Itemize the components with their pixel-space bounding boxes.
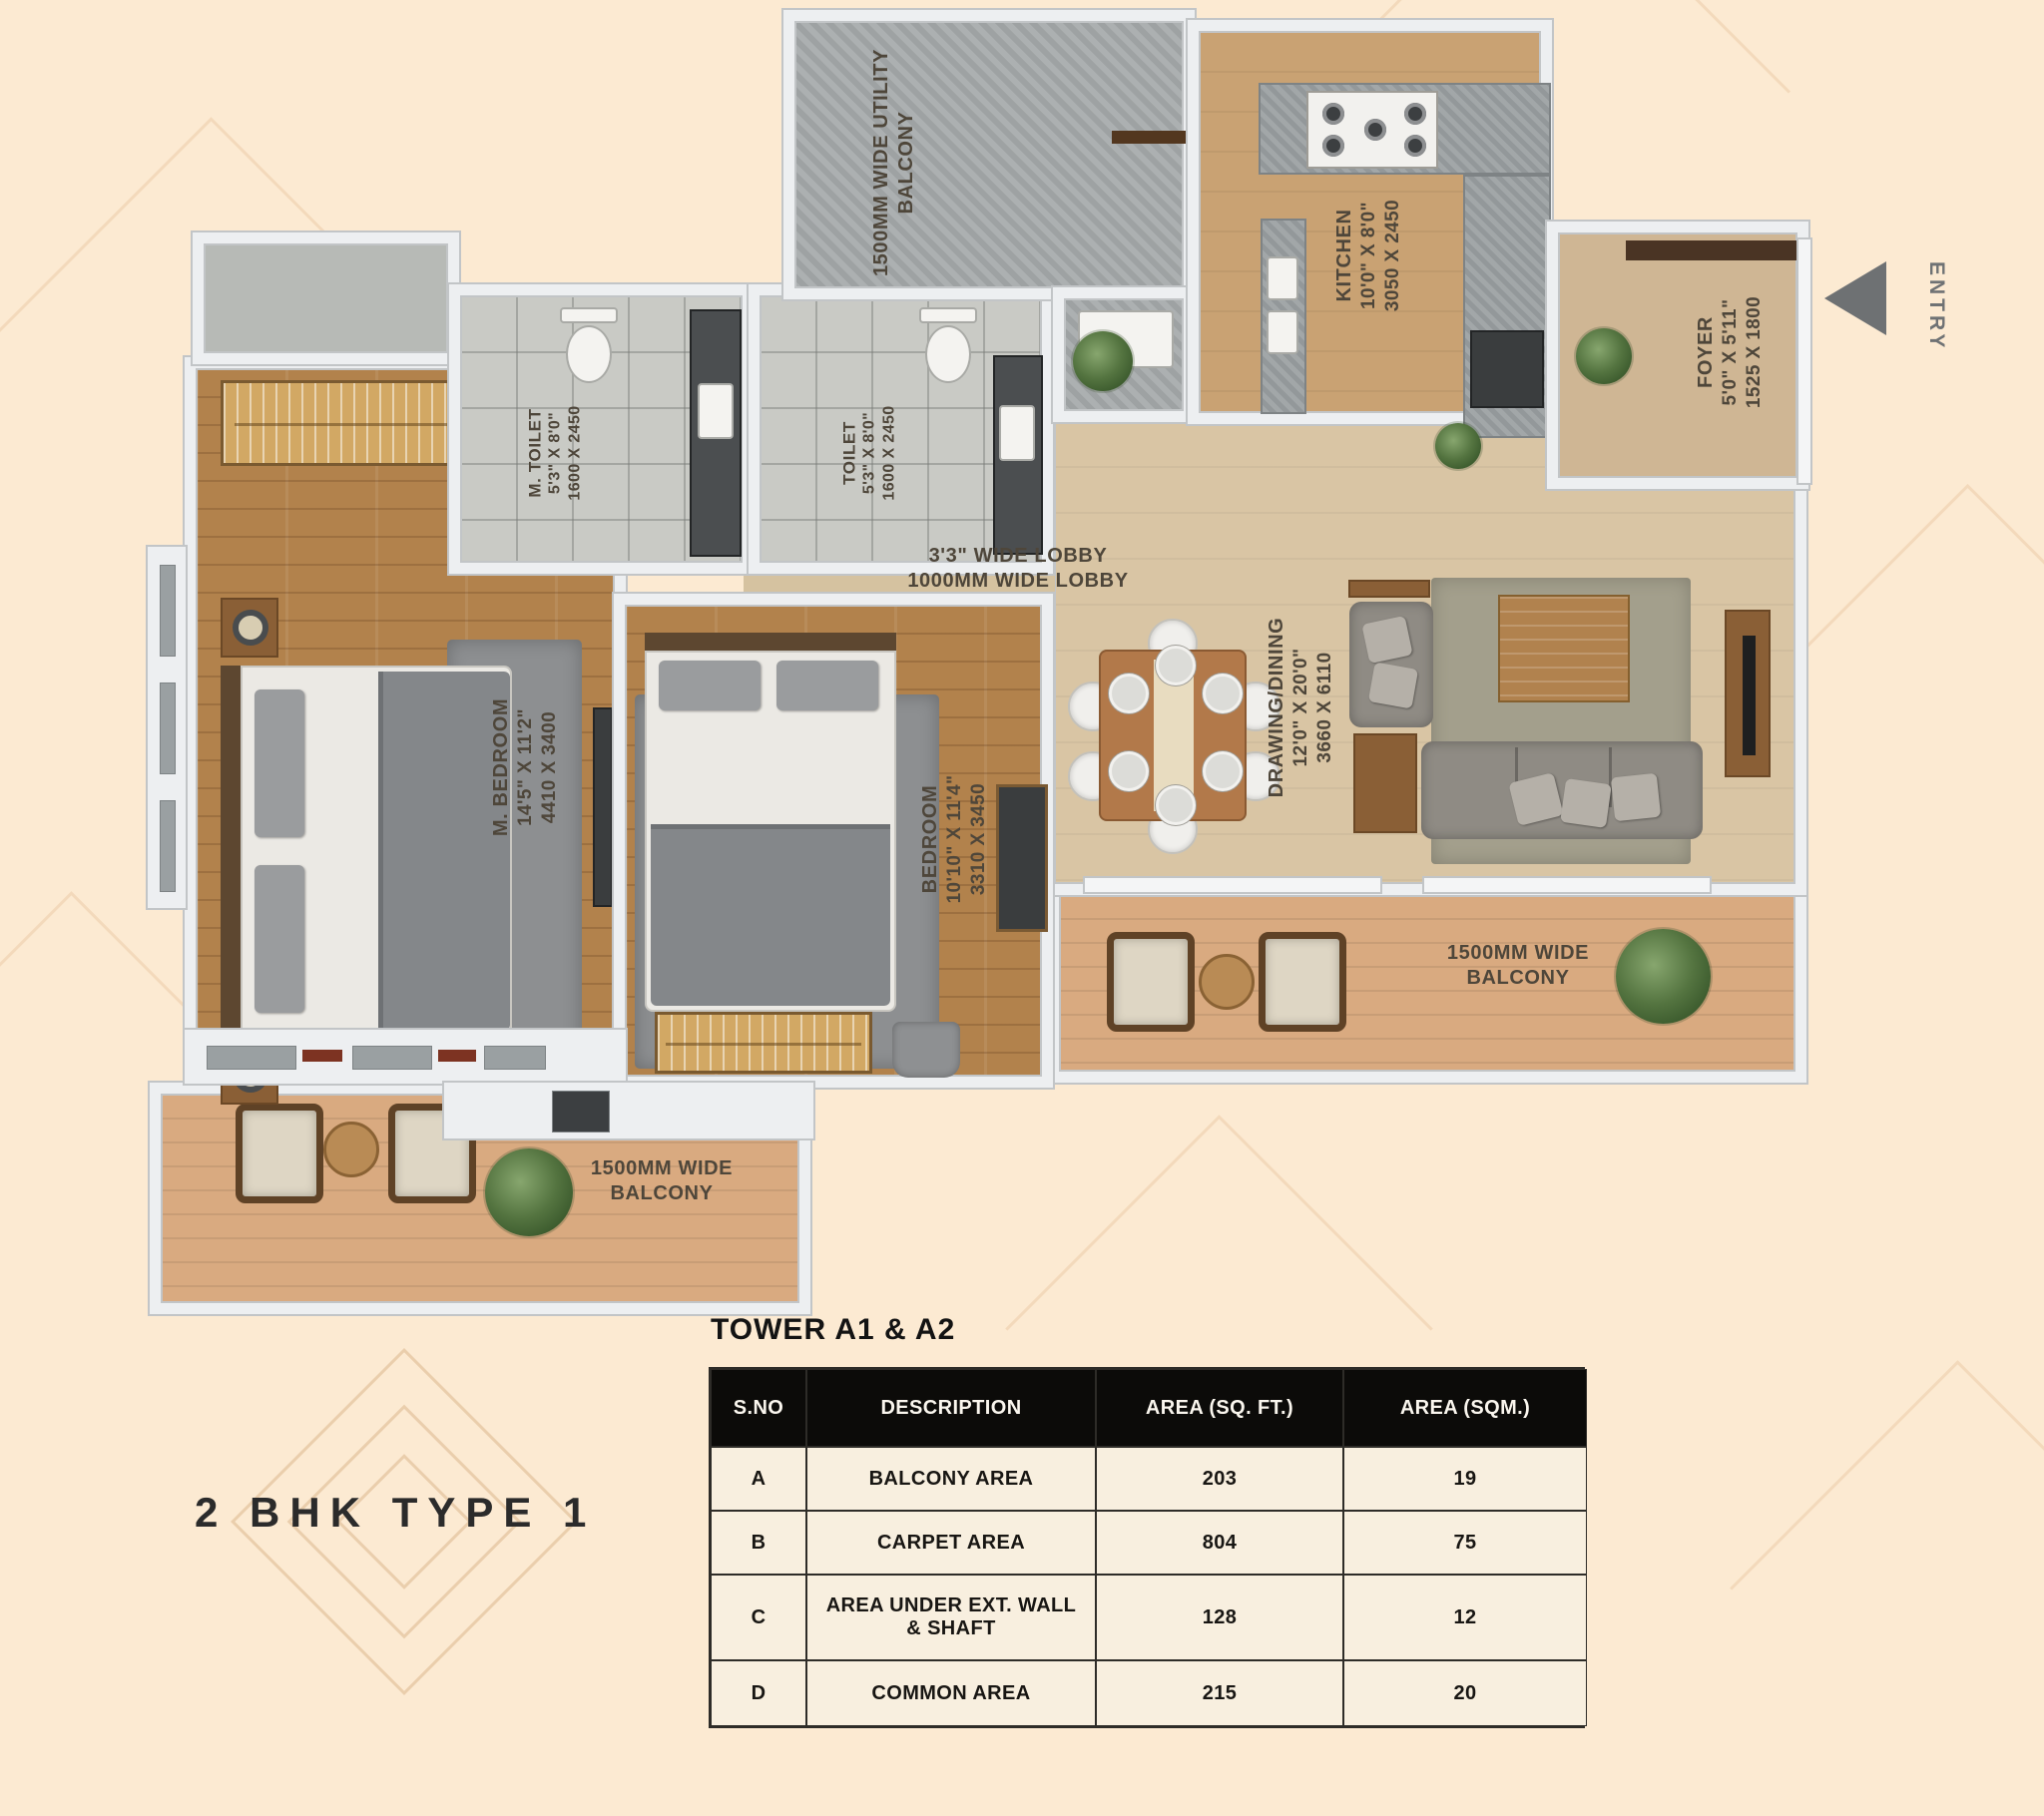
room-balcony-right: 1500MM WIDE BALCONY: [1048, 883, 1806, 1083]
cushion: [1508, 772, 1563, 826]
tv-cabinet: [996, 784, 1048, 932]
plant-icon: [1073, 331, 1133, 391]
plant-icon: [1435, 423, 1481, 469]
table-header-row: S.NO DESCRIPTION AREA (SQ. FT.) AREA (SQ…: [711, 1369, 1583, 1447]
console-table: [1626, 240, 1797, 260]
armchair: [1349, 602, 1433, 727]
cell-sqm: 75: [1343, 1511, 1587, 1575]
cell-sqft: 203: [1096, 1447, 1343, 1511]
room-m-toilet: M. TOILET 5'3" X 8'0" 1600 X 2450: [449, 284, 754, 574]
bed: [221, 666, 512, 1037]
utility-balcony-label: 1500MM WIDE UTILITY BALCONY: [869, 49, 919, 276]
m-bedroom-label: M. BEDROOM 14'5" X 11'2" 4410 X 3400: [489, 698, 562, 836]
balcony-door-sill: [1083, 876, 1382, 894]
header-cell-description: DESCRIPTION: [806, 1369, 1096, 1447]
wardrobe: [655, 1012, 872, 1074]
header-cell-area-sqm: AREA (SQM.): [1343, 1369, 1587, 1447]
m-toilet-label: M. TOILET 5'3" X 8'0" 1600 X 2450: [524, 405, 585, 500]
plant-icon: [1576, 328, 1632, 384]
window-pane: [484, 1046, 546, 1070]
entry-label: ENTRY: [1924, 261, 1948, 351]
wardrobe-rail: [666, 1043, 860, 1046]
plan-title: 2 BHK TYPE 1: [195, 1489, 596, 1537]
burner-icon: [1322, 135, 1344, 157]
dining-table: [1099, 650, 1247, 821]
kitchen-sink: [1267, 256, 1298, 300]
plate: [1203, 751, 1243, 791]
cell-sqft: 215: [1096, 1660, 1343, 1726]
headboard: [645, 633, 896, 651]
drying-rod: [1112, 131, 1186, 144]
plant-icon: [485, 1148, 573, 1236]
bed-pillow: [776, 661, 878, 710]
room-utility-balcony: 1500MM WIDE UTILITY BALCONY: [783, 10, 1195, 299]
foyer-window-sill: [1796, 237, 1812, 485]
drawing-dining-label: DRAWING/DINING 12'0" X 20'0" 3660 X 6110: [1265, 618, 1337, 798]
wash-basin: [999, 405, 1035, 461]
burner-icon: [1364, 119, 1386, 141]
window-left-wall: [148, 547, 186, 908]
window-pane: [352, 1046, 432, 1070]
coffee-table: [1498, 595, 1630, 702]
cell-description: COMMON AREA: [806, 1660, 1096, 1726]
balcony-chair: [236, 1104, 323, 1203]
toilet-tank: [560, 307, 618, 323]
plate: [1156, 646, 1196, 685]
table-row: B CARPET AREA 804 75: [711, 1511, 1583, 1575]
dresser: [593, 707, 613, 907]
console-table: [1348, 580, 1430, 598]
cell-sno: A: [711, 1447, 806, 1511]
window-pane: [160, 565, 176, 657]
room-toilet: TOILET 5'3" X 8'0" 1600 X 2450: [749, 284, 1053, 574]
balcony-right-label: 1500MM WIDE BALCONY: [1447, 941, 1589, 991]
toilet-bowl: [566, 325, 612, 383]
bed-pillow: [659, 661, 761, 710]
burner-icon: [1322, 103, 1344, 125]
cell-sqm: 12: [1343, 1575, 1587, 1660]
cell-sno: D: [711, 1660, 806, 1726]
plate: [1203, 674, 1243, 713]
entry-arrow-icon: [1824, 261, 1886, 335]
table-row: D COMMON AREA 215 20: [711, 1660, 1583, 1726]
window-pane: [552, 1091, 610, 1133]
window-pane: [207, 1046, 296, 1070]
window-pane: [160, 682, 176, 774]
cushion: [1611, 773, 1661, 822]
cell-sqm: 20: [1343, 1660, 1587, 1726]
cell-sqft: 804: [1096, 1511, 1343, 1575]
wash-basin: [698, 383, 734, 439]
header-cell-area-sqft: AREA (SQ. FT.): [1096, 1369, 1343, 1447]
foyer-label: FOYER 5'0" X 5'11" 1525 X 1800: [1694, 296, 1767, 408]
window-accent: [438, 1050, 476, 1062]
floorplan-page: { "plan_title": "2 BHK TYPE 1", "entry_l…: [0, 0, 2044, 1735]
bed-pillow: [255, 865, 304, 1013]
plant-icon: [1616, 929, 1711, 1024]
window-accent: [302, 1050, 342, 1062]
stove: [1306, 91, 1438, 169]
bed-pillow: [255, 689, 304, 837]
headboard: [221, 666, 241, 1037]
table-row: A BALCONY AREA 203 19: [711, 1447, 1583, 1511]
area-table: S.NO DESCRIPTION AREA (SQ. FT.) AREA (SQ…: [709, 1367, 1585, 1728]
plate: [1156, 785, 1196, 825]
kitchen-sink: [1267, 310, 1298, 354]
balcony-table: [323, 1122, 379, 1177]
room-kitchen: KITCHEN 10'0" X 8'0" 3050 X 2450: [1188, 20, 1552, 424]
room-foyer: FOYER 5'0" X 5'11" 1525 X 1800: [1547, 222, 1808, 489]
header-cell-sno: S.NO: [711, 1369, 806, 1447]
kitchen-label: KITCHEN 10'0" X 8'0" 3050 X 2450: [1332, 200, 1405, 311]
lamp-icon: [233, 610, 268, 646]
tv-screen: [1743, 636, 1756, 755]
cell-sqm: 19: [1343, 1447, 1587, 1511]
accent-chair: [892, 1022, 960, 1078]
balcony-door-sill: [1422, 876, 1712, 894]
plate: [1109, 674, 1149, 713]
toilet-tank: [919, 307, 977, 323]
lobby-label: 3'3" WIDE LOBBY 1000MM WIDE LOBBY: [907, 544, 1128, 594]
window-pane: [160, 800, 176, 892]
bedroom-label: BEDROOM 10'10" X 11'4" 3310 X 3450: [918, 775, 991, 904]
table-row: C AREA UNDER EXT. WALL & SHAFT 128 12: [711, 1575, 1583, 1660]
blanket: [651, 824, 890, 1006]
wall-block: [444, 1083, 813, 1138]
burner-icon: [1404, 135, 1426, 157]
bed: [645, 633, 896, 1012]
cell-description: BALCONY AREA: [806, 1447, 1096, 1511]
cell-sno: C: [711, 1575, 806, 1660]
cell-description: AREA UNDER EXT. WALL & SHAFT: [806, 1575, 1096, 1660]
oven: [1470, 330, 1544, 408]
toilet-bowl: [925, 325, 971, 383]
nightstand: [221, 598, 278, 658]
table-title: TOWER A1 & A2: [711, 1313, 955, 1347]
balcony-chair: [1259, 932, 1346, 1032]
side-table: [1353, 733, 1417, 833]
plate: [1109, 751, 1149, 791]
balcony-table: [1199, 954, 1255, 1010]
balcony-chair: [1107, 932, 1195, 1032]
burner-icon: [1404, 103, 1426, 125]
toilet-label: TOILET 5'3" X 8'0" 1600 X 2450: [838, 405, 899, 500]
cushion: [1560, 778, 1612, 828]
cushion: [1368, 662, 1418, 708]
cell-sqft: 128: [1096, 1575, 1343, 1660]
cell-description: CARPET AREA: [806, 1511, 1096, 1575]
sofa: [1421, 741, 1703, 839]
cell-sno: B: [711, 1511, 806, 1575]
window-strip: [185, 1030, 626, 1084]
shaft: [193, 232, 459, 364]
room-bedroom: BEDROOM 10'10" X 11'4" 3310 X 3450: [614, 594, 1053, 1088]
balcony-left-label: 1500MM WIDE BALCONY: [591, 1156, 733, 1206]
cushion: [1361, 616, 1412, 664]
